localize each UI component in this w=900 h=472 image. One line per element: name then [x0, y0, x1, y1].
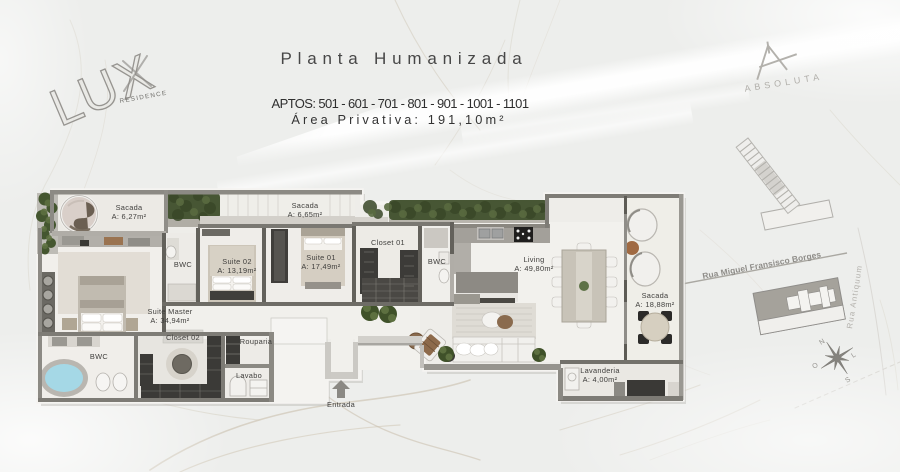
svg-text:BWC: BWC	[174, 260, 193, 269]
svg-text:BWC: BWC	[90, 352, 109, 361]
svg-text:A: 6,27m²: A: 6,27m²	[112, 212, 147, 221]
svg-text:A: 6,65m²: A: 6,65m²	[288, 210, 323, 219]
svg-text:Living: Living	[523, 255, 544, 264]
svg-text:A: 17,49m²: A: 17,49m²	[301, 262, 340, 271]
svg-text:Closet 02: Closet 02	[166, 333, 200, 342]
svg-text:BWC: BWC	[428, 257, 447, 266]
svg-text:Sacada: Sacada	[116, 203, 143, 212]
svg-text:A: 13,19m²: A: 13,19m²	[217, 266, 256, 275]
svg-text:Lavabo: Lavabo	[236, 371, 262, 380]
svg-text:Planta Humanizada: Planta Humanizada	[281, 49, 528, 68]
svg-text:Closet 01: Closet 01	[371, 238, 405, 247]
svg-text:APTOS: 501 - 601 - 701 - 801 -: APTOS: 501 - 601 - 701 - 801 - 901 - 100…	[272, 96, 529, 111]
svg-text:Sacada: Sacada	[292, 201, 319, 210]
svg-text:Área Privativa: 191,10m²: Área Privativa: 191,10m²	[291, 112, 506, 127]
svg-text:A: 4,00m²: A: 4,00m²	[583, 375, 618, 384]
svg-text:Sacada: Sacada	[642, 291, 669, 300]
svg-text:A: 49,80m²: A: 49,80m²	[514, 264, 553, 273]
svg-text:Suite 01: Suite 01	[306, 253, 336, 262]
svg-text:Rouparia: Rouparia	[240, 337, 273, 346]
svg-text:Lavanderia: Lavanderia	[580, 366, 620, 375]
svg-text:Entrada: Entrada	[327, 400, 356, 409]
svg-text:A: 34,94m²: A: 34,94m²	[150, 316, 189, 325]
svg-text:Suite Master: Suite Master	[147, 307, 192, 316]
svg-text:A: 18,88m²: A: 18,88m²	[635, 300, 674, 309]
svg-text:Suite 02: Suite 02	[222, 257, 252, 266]
